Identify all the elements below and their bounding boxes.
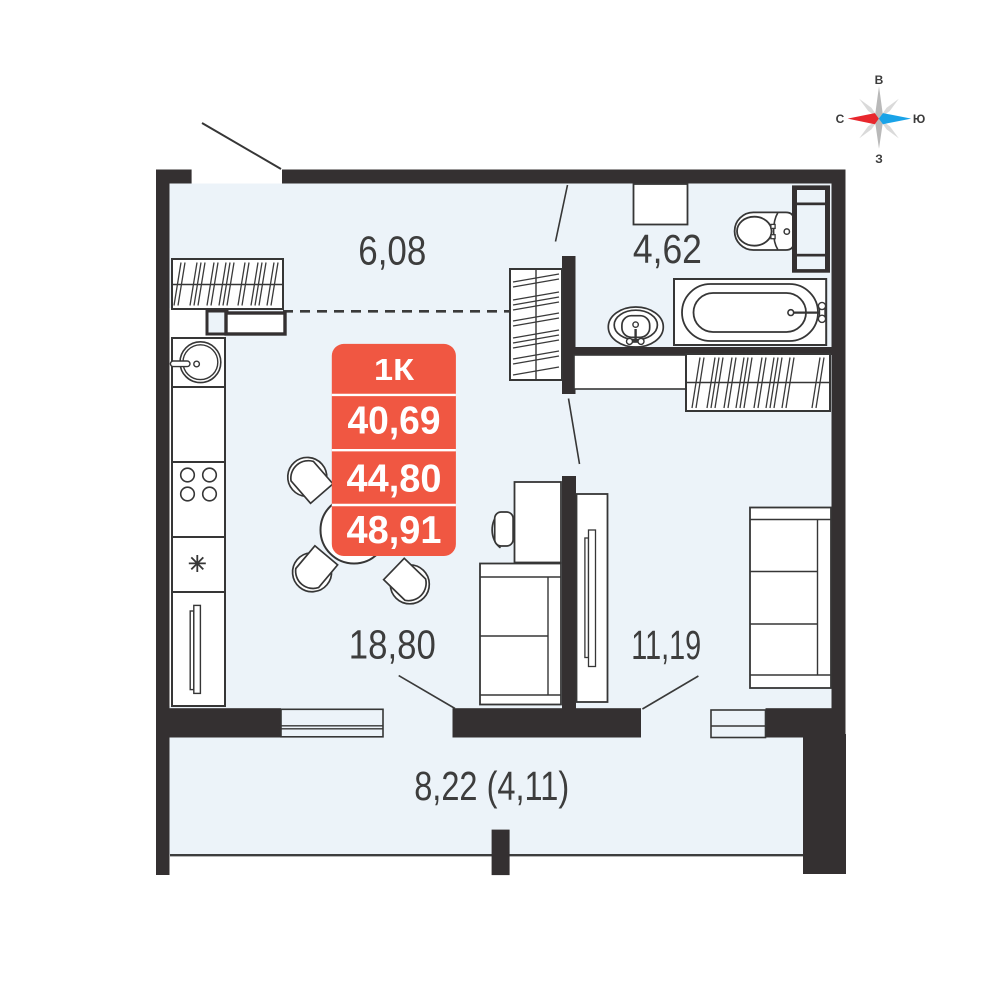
svg-text:1К: 1К [374,352,414,387]
svg-text:8,22 (4,11): 8,22 (4,11) [414,763,569,809]
svg-text:48,91: 48,91 [347,509,442,552]
svg-text:44,80: 44,80 [347,457,442,500]
svg-text:З: З [875,152,883,166]
svg-text:В: В [875,73,884,87]
svg-text:6,08: 6,08 [358,228,426,274]
svg-text:С: С [836,112,845,126]
svg-text:18,80: 18,80 [349,622,436,668]
svg-text:40,69: 40,69 [348,400,441,443]
svg-text:4,62: 4,62 [633,226,702,272]
svg-text:Ю: Ю [913,112,925,126]
svg-text:11,19: 11,19 [631,622,701,668]
